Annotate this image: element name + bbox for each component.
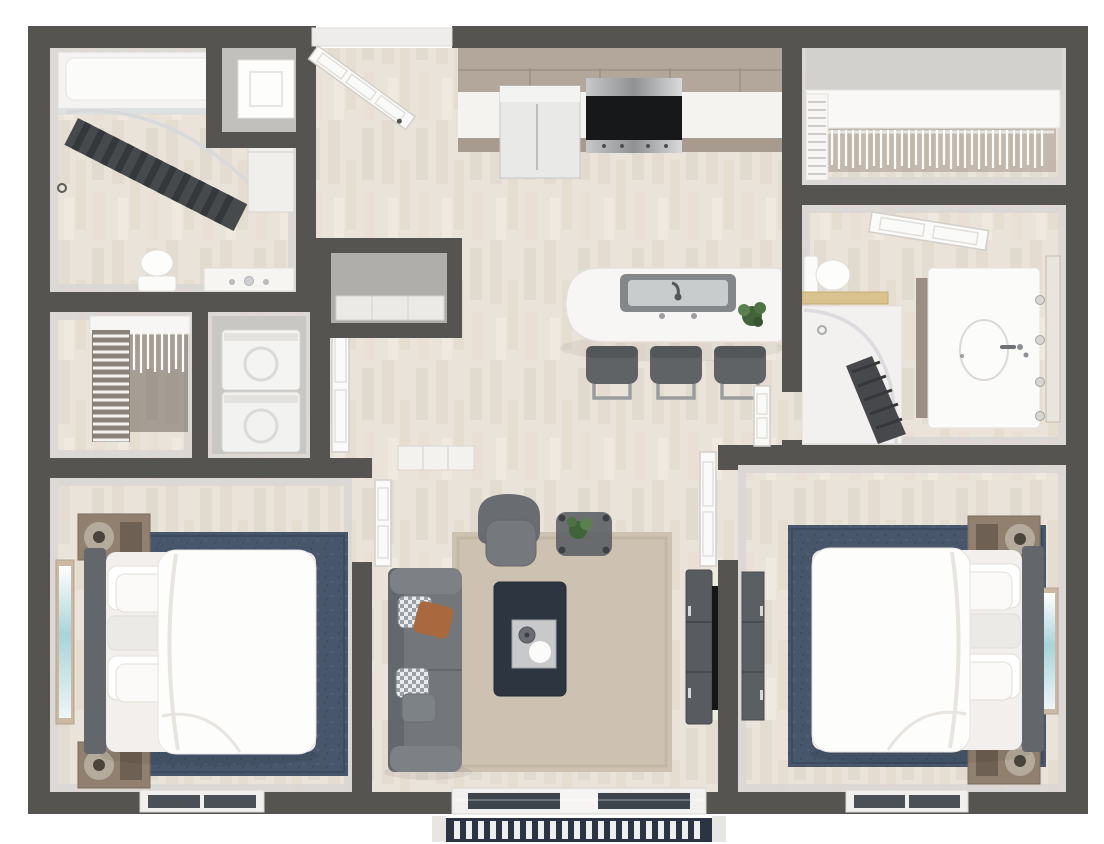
vanity-sink: [204, 268, 294, 291]
sliding-patio-door: [452, 788, 706, 814]
sofa-armrest: [390, 746, 462, 772]
plate: [529, 641, 551, 663]
console-table: [398, 446, 474, 470]
room-coat-closet: [331, 253, 447, 323]
bedroom-1-window: [140, 790, 264, 812]
side-shelving: [806, 94, 828, 180]
sink-bowl: [960, 320, 1008, 380]
bedroom-1-door: [375, 480, 391, 566]
closet-shelf: [806, 90, 1060, 128]
duvet: [158, 550, 316, 754]
bedroom-2-door: [700, 452, 716, 566]
water-heater: [238, 60, 294, 118]
room-walk-in-closet: [806, 48, 1062, 180]
bed: [84, 548, 320, 766]
towel-shelf: [802, 292, 888, 304]
balcony: [432, 816, 726, 842]
vanity-sink: [916, 268, 1040, 428]
bed: [810, 546, 1044, 764]
door-stile: [560, 790, 598, 812]
bathroom-2-entry-door: [754, 386, 770, 446]
range-hood: [586, 78, 682, 96]
cooktop: [586, 96, 682, 140]
coat-closet-door: [336, 296, 444, 320]
armchair: [478, 494, 540, 566]
refrigerator: [500, 86, 580, 178]
deck-step: [432, 816, 446, 842]
laundry-door: [332, 324, 349, 452]
linen-cabinet: [248, 140, 294, 212]
glass-panel: [468, 793, 560, 809]
toilet: [138, 250, 176, 291]
room-bedroom-1-closet: [90, 316, 190, 442]
shower: [802, 306, 906, 444]
closet-wall-face: [806, 48, 1062, 92]
glass-panel: [598, 793, 690, 809]
wall-art: [56, 560, 74, 724]
deck-step: [712, 816, 726, 842]
headboard: [84, 548, 106, 754]
room-laundry-closet: [212, 316, 306, 454]
dresser: [742, 572, 764, 720]
mirror: [1046, 256, 1060, 422]
floor-plan-render: [0, 0, 1104, 844]
coffee-table: [494, 582, 566, 696]
room-bedroom-2: [742, 516, 1058, 784]
floor-plan-stage: [0, 0, 1104, 844]
range: [586, 78, 682, 153]
tv-console: [686, 570, 712, 724]
bedroom-2-window: [846, 790, 968, 812]
headboard: [1022, 546, 1044, 752]
duvet: [812, 548, 970, 752]
room-utility-closet: [222, 48, 296, 132]
sofa: [384, 568, 472, 780]
wire-shelves: [92, 330, 130, 442]
sofa-armrest: [390, 568, 462, 594]
deck-slats: [454, 821, 700, 839]
entry-threshold: [312, 28, 452, 46]
side-table: [556, 512, 612, 556]
